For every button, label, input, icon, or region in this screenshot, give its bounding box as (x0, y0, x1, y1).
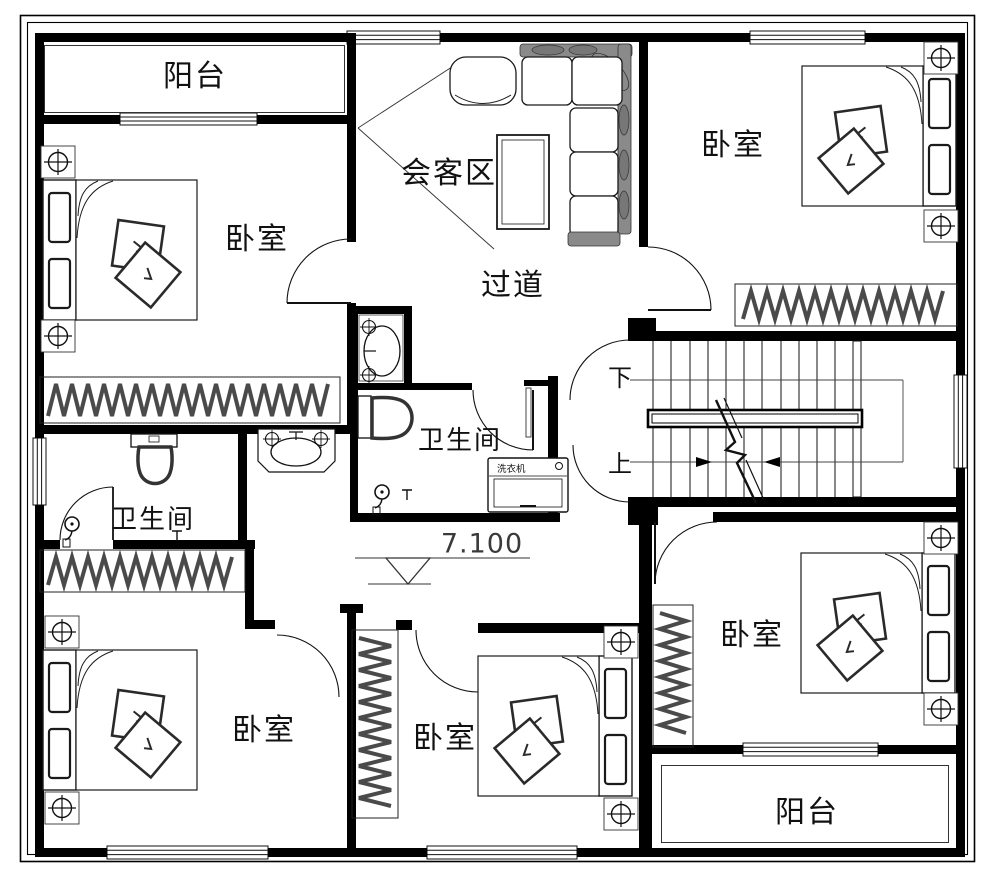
label-bathroom-middle: 卫生间 (418, 428, 502, 454)
staircase (630, 341, 903, 503)
door-bathroom-left (60, 487, 113, 540)
door-bedroom-bottom-middle (416, 630, 478, 692)
bed-top-right (802, 66, 956, 206)
bathroom-middle-fixtures: 洗衣机 (358, 315, 568, 515)
door-bedroom-top-right (648, 247, 711, 310)
elevation-marker (355, 558, 530, 584)
label-bathroom-left: 卫生间 (111, 507, 195, 533)
coffee-table (497, 135, 549, 229)
label-elevation: 7.100 (441, 531, 523, 558)
label-bedroom-bottom-right: 卧室 (720, 621, 784, 651)
label-balcony-top: 阳台 (163, 62, 227, 92)
bed-bottom-middle (478, 656, 632, 796)
sofa-set (450, 44, 635, 246)
floor-plan: 洗衣机 (0, 0, 1000, 881)
washing-machine-label: 洗衣机 (497, 463, 526, 475)
door-bedroom-bottom-left (277, 635, 339, 697)
label-bedroom-top-right: 卧室 (701, 131, 765, 161)
label-stairs-up: 上 (608, 452, 632, 476)
washing-machine: 洗衣机 (488, 458, 568, 512)
door-bedroom-top-left (287, 239, 351, 303)
label-bedroom-top-left: 卧室 (225, 225, 289, 255)
arrow-left-icon (764, 457, 780, 467)
label-bedroom-bottom-middle: 卧室 (413, 724, 477, 754)
vanity-counter (258, 429, 335, 472)
toilet-tank (358, 396, 371, 438)
door-bedroom-bottom-right (655, 522, 717, 584)
toilet-bowl (138, 447, 172, 484)
label-balcony-bottom: 阳台 (775, 798, 839, 828)
label-stairs-down: 下 (608, 366, 632, 390)
toilet-bowl (372, 398, 412, 439)
handrail (648, 410, 862, 427)
bed-bottom-right (801, 553, 955, 693)
arrow-right-icon (696, 457, 712, 467)
label-corridor: 过道 (481, 271, 545, 301)
label-reception: 会客区 (401, 159, 497, 189)
label-bedroom-bottom-left: 卧室 (232, 716, 296, 746)
bed-bottom-left (43, 650, 197, 790)
bed-top-left (43, 180, 197, 320)
